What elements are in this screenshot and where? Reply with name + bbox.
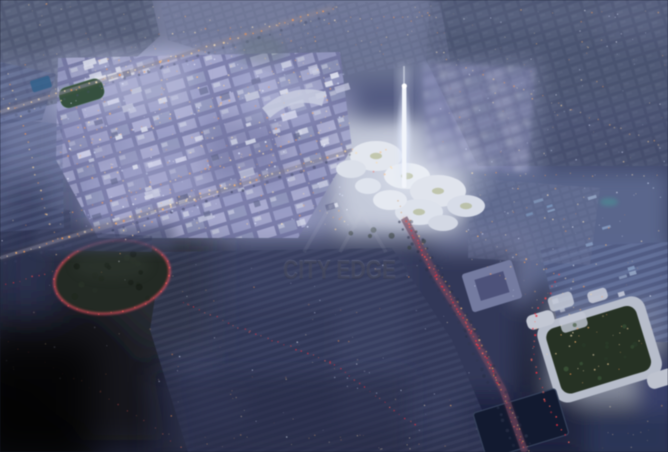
svg-text:CITY EDGE: CITY EDGE — [283, 255, 396, 285]
